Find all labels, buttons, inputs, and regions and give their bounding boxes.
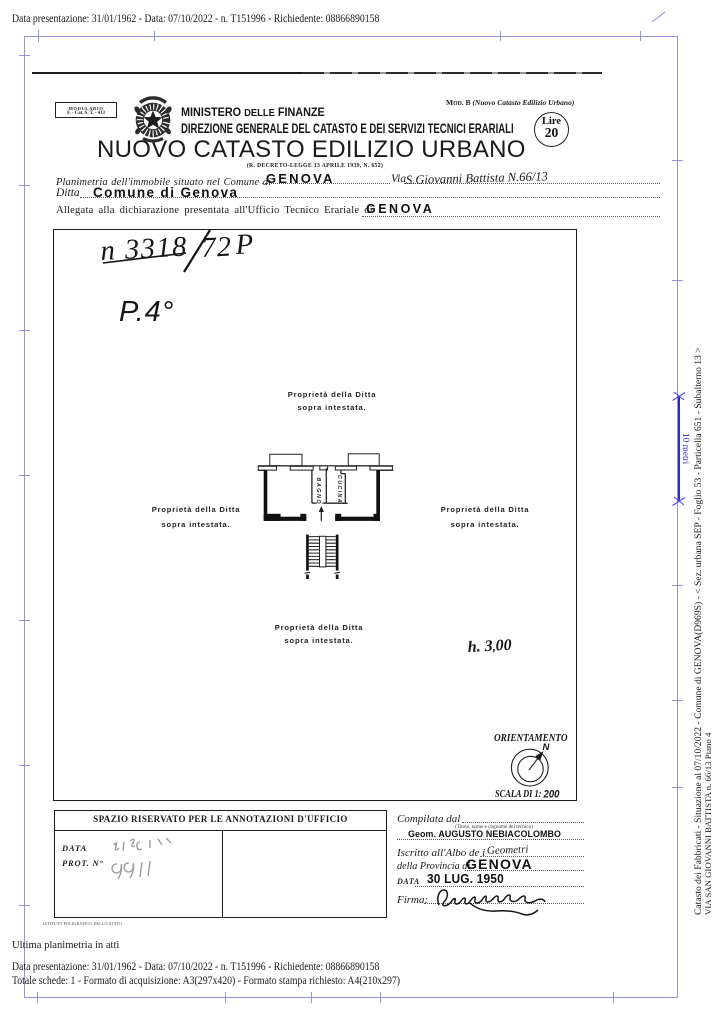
svg-text:ORIENTAMENTO: ORIENTAMENTO [494,732,568,744]
svg-text:SCALA DI 1:: SCALA DI 1: [495,789,542,800]
svg-text:Geometri: Geometri [487,844,529,857]
svg-text:CUCINA: CUCINA [336,475,342,504]
svg-text:P: P [234,228,254,261]
svg-text:BAGNO: BAGNO [315,478,321,506]
svg-text:200: 200 [543,789,561,801]
svg-text:N: N [543,742,551,753]
svg-text:P.4°: P.4° [119,296,174,328]
svg-text:S.Giovanni Battista N.66/13: S.Giovanni Battista N.66/13 [406,169,548,187]
svg-text:h. 3,00: h. 3,00 [467,637,512,656]
